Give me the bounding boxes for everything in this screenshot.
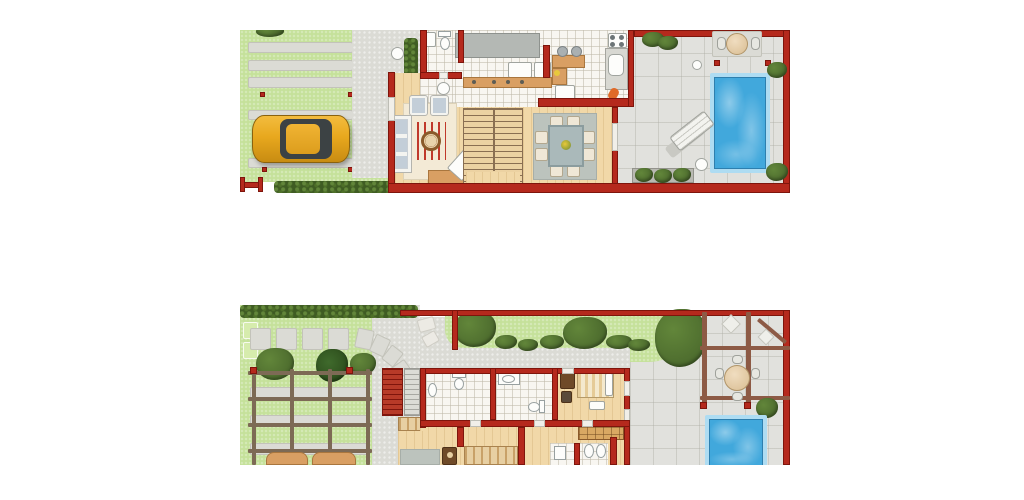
shower-tray — [554, 446, 566, 460]
patio-table — [726, 33, 748, 55]
stepping-stone — [302, 328, 323, 350]
house-left-wall — [420, 368, 426, 428]
kitchen-counter — [455, 33, 540, 58]
top-hedge — [240, 305, 418, 318]
pergola-beam — [746, 312, 751, 407]
pergola-post — [744, 402, 751, 409]
plunge-pool — [705, 415, 767, 465]
hall-table — [437, 82, 450, 95]
dining-chair — [535, 148, 548, 161]
toilet-bowl — [454, 378, 464, 390]
chair — [561, 391, 572, 403]
centerpiece — [561, 140, 571, 150]
stepping-stone — [250, 328, 271, 350]
swimming-pool — [710, 73, 770, 173]
rug — [400, 449, 440, 465]
front-hedge — [274, 181, 392, 193]
house-left-wall — [388, 72, 395, 193]
wall — [543, 45, 550, 78]
patio-chair — [717, 37, 726, 50]
carport-post — [260, 92, 265, 97]
wall — [420, 30, 427, 75]
door-opening — [534, 420, 545, 427]
porch-fountain — [391, 47, 404, 60]
burner — [619, 35, 624, 40]
sideboard-item — [492, 80, 496, 84]
door-opening — [470, 420, 481, 427]
house-top-wall — [420, 368, 630, 374]
stepping-stone — [276, 328, 297, 350]
terrace-chair — [732, 355, 743, 364]
paver-strip — [248, 77, 353, 88]
paver-strip — [248, 42, 353, 53]
wall — [458, 30, 464, 63]
armchair — [410, 96, 427, 115]
burner — [610, 35, 615, 40]
deco-circle — [692, 60, 702, 70]
window — [388, 97, 395, 121]
kitchen-right-wall — [628, 30, 634, 107]
ground-floor-plan — [240, 30, 790, 193]
patio-chair — [751, 37, 760, 50]
microwave — [508, 62, 532, 78]
sink — [428, 383, 437, 397]
sideboard-item — [472, 80, 476, 84]
wall — [552, 368, 558, 420]
pergola-post — [346, 367, 353, 374]
bedside-mat — [589, 401, 605, 410]
gate-post — [240, 177, 245, 192]
toilet-bowl — [584, 444, 594, 458]
pergola-post — [250, 367, 257, 374]
terrace-door — [612, 123, 618, 151]
car-roof — [286, 124, 320, 154]
terrace-table — [724, 365, 750, 391]
pergola-beam — [702, 312, 707, 407]
toilet-tank — [539, 400, 545, 413]
wall — [457, 427, 464, 447]
pergola-beam — [700, 346, 790, 350]
burner — [619, 42, 624, 47]
sideboard-item — [520, 80, 524, 84]
gate-post — [258, 177, 263, 192]
garden-seat — [266, 452, 308, 465]
bidet — [596, 444, 606, 458]
wall — [574, 443, 580, 465]
basin — [502, 375, 515, 383]
wall — [518, 427, 525, 465]
dining-chair — [535, 131, 548, 144]
floor-plans-image — [0, 0, 1024, 500]
door-opening — [562, 368, 574, 374]
wall — [610, 437, 617, 465]
exterior-stairs — [382, 368, 403, 416]
terrace-chair — [715, 368, 724, 379]
pergola-beam — [248, 397, 372, 401]
corridor-wall — [420, 420, 630, 427]
pillow — [605, 373, 613, 396]
nightstand-knob — [447, 452, 453, 458]
side-table — [695, 158, 708, 171]
pergola-beam — [248, 423, 372, 427]
pergola-beam — [700, 396, 790, 400]
armchair — [431, 96, 448, 115]
bar-stool — [557, 46, 568, 57]
pergola-beam — [248, 371, 372, 375]
breakfast-bar — [552, 55, 585, 68]
bottom-wall — [388, 183, 790, 193]
terrace-chair — [751, 368, 760, 379]
kitchen-sink — [608, 54, 624, 76]
bed — [464, 446, 518, 465]
parked-car — [252, 115, 350, 163]
garden-seat — [312, 452, 356, 465]
window — [624, 381, 630, 396]
bookshelf — [578, 426, 624, 440]
door-opening — [582, 420, 593, 427]
terrace-right-wall — [783, 310, 790, 465]
stepping-stone — [328, 328, 349, 350]
door-opening — [439, 72, 448, 79]
fruit-bowl — [554, 70, 560, 76]
toilet-bowl — [440, 37, 450, 50]
kitchen-dining-wall — [538, 98, 634, 107]
carport-post — [262, 167, 267, 172]
paver-strip — [248, 60, 353, 71]
pergola-post — [700, 402, 707, 409]
post — [714, 60, 720, 66]
exterior-stairs — [404, 368, 420, 416]
wall — [490, 368, 496, 420]
sideboard-item — [506, 80, 510, 84]
terrace-chair — [732, 392, 743, 401]
burner — [610, 42, 615, 47]
garden-wall — [452, 310, 458, 350]
upper-floor-plan — [240, 305, 790, 465]
bar-stool — [571, 46, 582, 57]
pergola-beam — [248, 449, 372, 453]
round-coffee-table — [421, 131, 441, 151]
